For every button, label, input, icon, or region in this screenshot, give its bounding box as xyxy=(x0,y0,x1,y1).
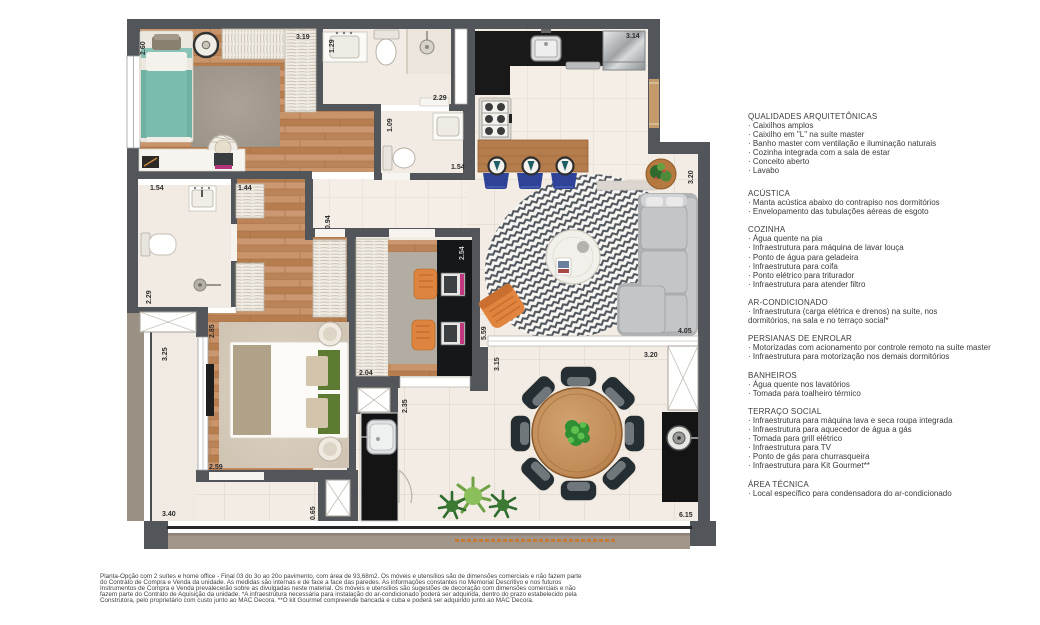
svg-text:5.59: 5.59 xyxy=(481,326,488,340)
svg-text:1.44: 1.44 xyxy=(238,185,252,192)
svg-text:2.54: 2.54 xyxy=(459,246,466,260)
svg-text:1.54: 1.54 xyxy=(451,164,465,171)
svg-text:1.09: 1.09 xyxy=(387,118,394,132)
svg-text:3.15: 3.15 xyxy=(494,357,501,371)
svg-text:3.20: 3.20 xyxy=(688,170,695,184)
svg-text:2.04: 2.04 xyxy=(359,370,373,377)
svg-text:2.60: 2.60 xyxy=(140,41,147,55)
svg-text:3.14: 3.14 xyxy=(626,33,640,40)
svg-text:2.35: 2.35 xyxy=(402,399,409,413)
svg-text:1.54: 1.54 xyxy=(150,185,164,192)
svg-text:2.29: 2.29 xyxy=(433,95,447,102)
svg-text:0.94: 0.94 xyxy=(325,215,332,229)
svg-text:2.59: 2.59 xyxy=(209,464,223,471)
svg-text:2.29: 2.29 xyxy=(146,290,153,304)
svg-text:4.05: 4.05 xyxy=(678,328,692,335)
svg-text:3.40: 3.40 xyxy=(162,511,176,518)
svg-text:0.65: 0.65 xyxy=(310,506,317,520)
svg-text:1.29: 1.29 xyxy=(329,39,336,53)
svg-text:3.19: 3.19 xyxy=(296,34,310,41)
svg-text:3.20: 3.20 xyxy=(644,352,658,359)
svg-text:6.15: 6.15 xyxy=(679,512,693,519)
svg-text:3.25: 3.25 xyxy=(162,347,169,361)
svg-text:2.85: 2.85 xyxy=(209,324,216,338)
